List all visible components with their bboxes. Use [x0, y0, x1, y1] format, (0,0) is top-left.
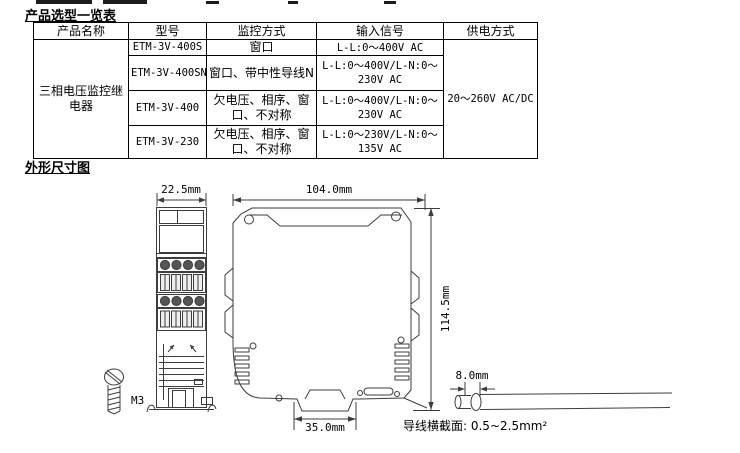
wire-ferrule-icon — [455, 393, 672, 411]
side-height-label: 114.5mm — [439, 285, 452, 332]
side-width-label: 104.0mm — [306, 183, 353, 196]
wire-strip-length-label: 8.0mm — [455, 369, 488, 382]
module-front-view — [147, 193, 216, 412]
rail-notch-width-label: 35.0mm — [305, 421, 345, 434]
front-width-label: 22.5mm — [161, 183, 201, 196]
wire-cross-section-note: 导线横截面: 0.5~2.5mm² — [403, 419, 547, 433]
module-side-view — [225, 208, 427, 411]
dimension-drawing: 22.5mm 104.0mm 114.5mm 35.0mm 8.0mm M3 导… — [0, 0, 740, 453]
dimension-lines — [233, 194, 495, 430]
screw-size-label: M3 — [131, 394, 144, 407]
datasheet-page: 产品选型一览表 产品名称 型号 监控方式 输入信号 供电方式 三相电压监控继电器… — [0, 0, 740, 453]
m3-screw-icon — [105, 369, 124, 414]
